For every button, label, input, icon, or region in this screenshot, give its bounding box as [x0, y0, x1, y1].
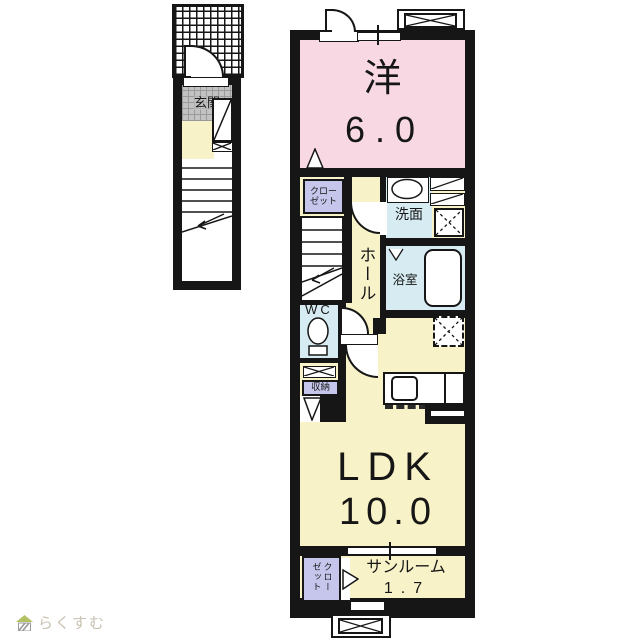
toilet-icon — [306, 316, 332, 358]
ldk-label-text: LDK — [337, 446, 439, 488]
wall-ldk-corner — [320, 396, 346, 422]
sunroom-closet: クローゼット — [302, 556, 341, 602]
bowtie-icon — [304, 367, 334, 376]
window-top — [357, 32, 401, 41]
hall-1f — [182, 121, 214, 159]
washer-place — [434, 208, 464, 237]
washroom-label: 洗面 — [387, 205, 431, 223]
meter-box-bottom — [338, 618, 383, 634]
washroom-label-text: 洗面 — [395, 207, 423, 222]
kitchen-dashed-edge — [385, 403, 427, 409]
bath-door-v — [388, 248, 404, 262]
storage-label: 収納 — [311, 383, 330, 393]
western-room-size-value: 6.0 — [345, 111, 425, 149]
shelf-lower — [430, 193, 465, 206]
sunroom-size: 1.7 — [368, 580, 446, 599]
toilet — [306, 316, 332, 358]
stairs-1f — [182, 158, 232, 236]
hall-label-text: ホール — [357, 246, 375, 303]
window-top-tick — [377, 25, 379, 45]
ldk-size: 10.0 — [308, 492, 468, 534]
shelf-icon — [431, 194, 463, 204]
hall-label: ホール — [352, 218, 379, 330]
folding-door-icon — [388, 248, 404, 262]
storage-door-triangle — [303, 397, 322, 421]
basin-counter — [387, 177, 429, 203]
wc-label-text: WC — [305, 303, 333, 317]
house-logo-icon — [16, 615, 33, 631]
washroom-doorway — [379, 202, 387, 235]
stair-arrival-triangle — [306, 148, 324, 169]
shelf-upper — [430, 177, 465, 191]
western-room-size: 6.0 — [310, 110, 460, 150]
sunroom-closet-label: クローゼット — [311, 562, 333, 598]
site-logo-text: らくすむ — [38, 612, 106, 633]
window-sunroom-top — [348, 548, 436, 554]
kitchen-counter-divider — [444, 374, 446, 403]
storage-box: 収納 — [302, 380, 339, 396]
wall-stairs-right — [344, 177, 352, 303]
bathroom-label-text: 浴室 — [392, 274, 417, 287]
bathroom-label: 浴室 — [386, 273, 424, 289]
wall-wc-bottom — [300, 358, 338, 363]
ldk-label: LDK — [308, 446, 468, 488]
window-sunroom-tick — [389, 542, 391, 560]
closet-upper: クロー ゼット — [303, 179, 344, 214]
sunroom-size-value: 1.7 — [384, 581, 430, 598]
closet-label-line2: ゼット — [310, 197, 337, 206]
sunroom-label: サンルーム — [350, 559, 462, 578]
western-room-label: 洋 — [310, 58, 455, 102]
floorplan-canvas: 玄関 クロー — [0, 0, 640, 640]
vent-bowtie-2f — [303, 366, 336, 378]
kitchen-sink — [391, 376, 418, 401]
bowtie-icon — [213, 143, 231, 150]
meter-box-icon — [406, 15, 455, 26]
entry-threshold — [319, 31, 359, 42]
ldk-door-panel — [340, 334, 378, 345]
stairs-icon — [302, 218, 342, 300]
meter-box-icon — [340, 620, 381, 632]
wall-below-western — [300, 168, 465, 177]
western-room-name: 洋 — [363, 60, 401, 100]
sunroom-label-text: サンルーム — [366, 560, 446, 577]
window-bottom — [350, 601, 385, 611]
shoe-cabinet — [212, 98, 233, 142]
shelf-icon — [431, 178, 463, 189]
bathtub — [424, 249, 462, 307]
wall-hall-right — [380, 177, 386, 318]
door-triangle-icon — [303, 397, 322, 421]
meter-box-top — [404, 13, 457, 28]
up-triangle-icon — [306, 148, 324, 169]
shoe-cabinet-shelf-icon — [214, 100, 231, 140]
porch-threshold — [183, 77, 229, 87]
ldk-size-value: 10.0 — [339, 493, 437, 533]
site-logo: らくすむ — [16, 612, 106, 633]
kitchen-wall-slit — [431, 411, 464, 416]
stairs-icon — [182, 158, 232, 236]
stairs-2f — [300, 216, 344, 302]
entry-door-arc-icon — [332, 9, 356, 32]
fridge-place — [433, 316, 464, 347]
vent-bowtie-1f — [212, 142, 233, 152]
wall-washroom-bath — [386, 238, 465, 246]
fridge-place-icon — [435, 318, 462, 345]
washer-place-icon — [436, 210, 462, 235]
sink-icon — [388, 178, 426, 200]
wc-label: WC — [300, 302, 338, 317]
